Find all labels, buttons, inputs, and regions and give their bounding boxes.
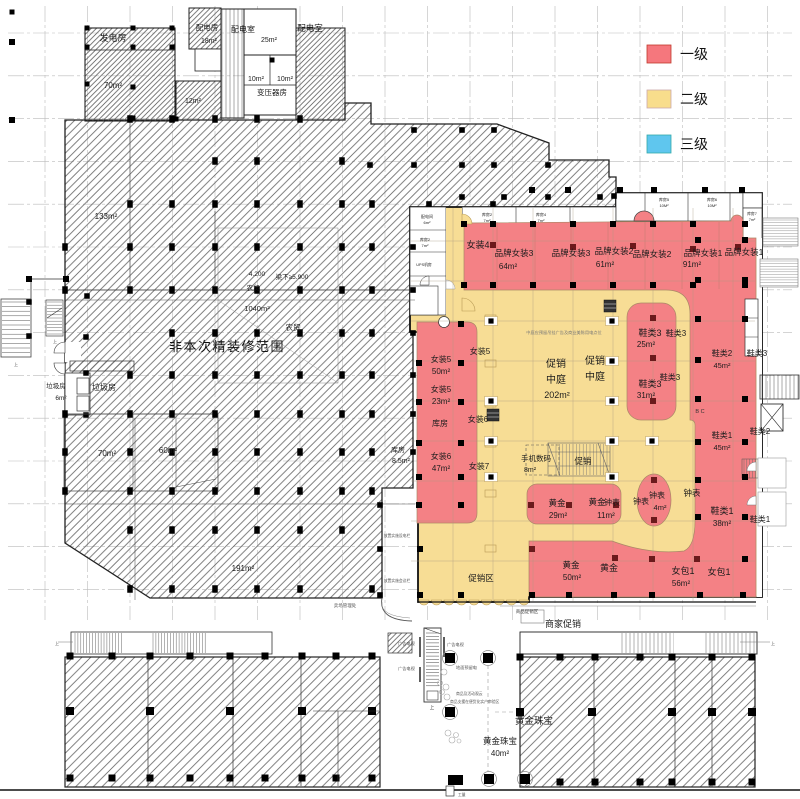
svg-text:一级: 一级 xyxy=(680,46,708,62)
svg-text:垃圾房: 垃圾房 xyxy=(92,382,116,392)
svg-text:60m²: 60m² xyxy=(159,446,178,455)
svg-text:鞋类1: 鞋类1 xyxy=(712,430,733,440)
svg-text:7m²: 7m² xyxy=(538,218,546,223)
svg-text:7m²: 7m² xyxy=(422,243,430,248)
svg-text:梁下≥5.900: 梁下≥5.900 xyxy=(276,272,309,281)
svg-text:钟表: 钟表 xyxy=(683,488,701,498)
svg-text:钟表: 钟表 xyxy=(633,496,649,506)
svg-text:变压器房: 变压器房 xyxy=(257,87,287,97)
svg-text:品牌女装2: 品牌女装2 xyxy=(633,249,672,259)
svg-text:133m²: 133m² xyxy=(95,212,118,221)
svg-text:非本次精装修范围: 非本次精装修范围 xyxy=(169,339,285,354)
svg-text:38m²: 38m² xyxy=(713,519,732,528)
svg-text:鞋类2: 鞋类2 xyxy=(712,348,733,358)
svg-text:广告电视: 广告电视 xyxy=(447,641,465,648)
svg-text:鞋类1: 鞋类1 xyxy=(710,505,733,516)
svg-text:垃圾房: 垃圾房 xyxy=(46,381,66,390)
svg-text:上: 上 xyxy=(430,704,435,710)
svg-text:女装7: 女装7 xyxy=(469,461,490,471)
svg-text:45m²: 45m² xyxy=(713,361,731,370)
svg-text:70m²: 70m² xyxy=(104,81,123,90)
svg-text:UPS机房: UPS机房 xyxy=(416,262,432,267)
svg-text:上: 上 xyxy=(55,640,59,646)
svg-text:库房6: 库房6 xyxy=(707,196,718,202)
svg-text:促销: 促销 xyxy=(574,456,592,466)
svg-text:促销区: 促销区 xyxy=(468,573,494,583)
svg-text:鞋类1: 鞋类1 xyxy=(750,514,771,524)
svg-text:黄金: 黄金 xyxy=(562,560,580,570)
svg-text:56m²: 56m² xyxy=(672,579,691,588)
svg-text:鞋类3: 鞋类3 xyxy=(666,328,687,338)
svg-text:50m²: 50m² xyxy=(563,573,582,582)
svg-text:女装4: 女装4 xyxy=(466,239,489,250)
svg-text:黄金珠宝: 黄金珠宝 xyxy=(515,715,553,727)
svg-text:18m²: 18m² xyxy=(201,38,218,45)
svg-text:商品及活动观云: 商品及活动观云 xyxy=(456,691,483,696)
svg-text:配电间: 配电间 xyxy=(421,213,433,219)
svg-text:库房5: 库房5 xyxy=(659,196,670,202)
svg-text:50m²: 50m² xyxy=(432,367,451,376)
svg-text:库房: 库房 xyxy=(391,445,405,454)
svg-text:品牌女装1: 品牌女装1 xyxy=(725,247,764,257)
svg-text:配电房: 配电房 xyxy=(196,22,219,32)
svg-text:31m²: 31m² xyxy=(637,391,656,400)
svg-text:1040m²: 1040m² xyxy=(244,304,270,313)
svg-text:配电室: 配电室 xyxy=(297,23,323,33)
svg-text:库房: 库房 xyxy=(432,418,448,428)
svg-text:鞋类3: 鞋类3 xyxy=(747,348,768,358)
svg-text:三级: 三级 xyxy=(680,136,708,152)
svg-text:促销: 促销 xyxy=(585,354,605,367)
svg-text:地面预留电: 地面预留电 xyxy=(456,664,478,671)
svg-text:女装6: 女装6 xyxy=(431,451,452,461)
svg-text:商品支援在便货化实户审验区: 商品支援在便货化实户审验区 xyxy=(450,699,500,704)
svg-text:中庭: 中庭 xyxy=(585,370,605,383)
svg-text:8m²: 8m² xyxy=(524,467,537,474)
svg-text:品牌女装2: 品牌女装2 xyxy=(595,246,634,256)
svg-text:卖场管理处: 卖场管理处 xyxy=(334,602,357,609)
svg-text:45m²: 45m² xyxy=(713,443,731,452)
svg-text:上: 上 xyxy=(771,640,775,646)
svg-text:12m²: 12m² xyxy=(185,98,202,105)
svg-text:鞋类3: 鞋类3 xyxy=(660,372,681,382)
svg-text:库房2: 库房2 xyxy=(482,211,493,217)
svg-text:70m²: 70m² xyxy=(98,449,117,458)
svg-text:商品促销区: 商品促销区 xyxy=(516,608,539,615)
svg-text:10M²: 10M² xyxy=(707,203,717,208)
svg-text:29m²: 29m² xyxy=(549,511,568,520)
svg-text:中庭: 中庭 xyxy=(546,373,566,386)
svg-text:女包1: 女包1 xyxy=(671,565,694,576)
svg-text:放置实施会议栏: 放置实施会议栏 xyxy=(384,578,411,583)
svg-text:鞋类3: 鞋类3 xyxy=(638,327,661,338)
svg-text:B C: B C xyxy=(695,409,704,415)
svg-text:库房7: 库房7 xyxy=(747,211,757,216)
svg-text:91m²: 91m² xyxy=(683,260,702,269)
svg-text:商家促销: 商家促销 xyxy=(545,618,581,629)
svg-text:鞋类3: 鞋类3 xyxy=(638,378,661,389)
svg-text:农贸: 农贸 xyxy=(286,322,301,332)
svg-text:40m²: 40m² xyxy=(491,749,510,758)
svg-text:鞋类2: 鞋类2 xyxy=(750,426,771,436)
svg-text:202m²: 202m² xyxy=(544,390,570,400)
svg-text:放置实施设电栏: 放置实施设电栏 xyxy=(384,533,411,538)
svg-text:女装6: 女装6 xyxy=(468,414,489,424)
svg-text:61m²: 61m² xyxy=(596,260,615,269)
svg-text:女装5: 女装5 xyxy=(431,354,452,364)
svg-text:10M²: 10M² xyxy=(659,203,669,208)
svg-text:25m²: 25m² xyxy=(261,37,278,44)
svg-text:促销: 促销 xyxy=(546,357,566,370)
svg-text:黄金: 黄金 xyxy=(548,498,566,508)
svg-text:25m²: 25m² xyxy=(637,340,656,349)
svg-text:64m²: 64m² xyxy=(499,262,518,271)
svg-text:47m²: 47m² xyxy=(432,464,451,473)
svg-text:工量: 工量 xyxy=(458,792,466,797)
svg-text:钟表: 钟表 xyxy=(604,497,620,507)
svg-text:品牌女装3: 品牌女装3 xyxy=(495,248,534,258)
svg-text:女装5: 女装5 xyxy=(431,384,452,394)
svg-text:4m²: 4m² xyxy=(654,503,667,512)
svg-text:黄金珠宝: 黄金珠宝 xyxy=(483,736,517,746)
svg-text:191m²: 191m² xyxy=(232,564,255,573)
svg-text:广告电视: 广告电视 xyxy=(398,665,416,672)
svg-text:23m²: 23m² xyxy=(432,397,451,406)
svg-text:钟表: 钟表 xyxy=(649,490,665,500)
svg-text:6m²: 6m² xyxy=(424,220,432,225)
svg-text:11m²: 11m² xyxy=(597,511,615,520)
svg-text:二级: 二级 xyxy=(680,91,708,107)
svg-text:发电房: 发电房 xyxy=(99,32,126,43)
svg-text:品牌女装1: 品牌女装1 xyxy=(684,248,723,258)
svg-text:广告电视: 广告电视 xyxy=(398,640,416,647)
svg-text:配电室: 配电室 xyxy=(231,24,255,34)
svg-text:中庭应预留吊挂广告及商业美陈用电点位: 中庭应预留吊挂广告及商业美陈用电点位 xyxy=(526,329,601,336)
svg-text:黄金: 黄金 xyxy=(600,562,618,573)
svg-text:品牌女装3: 品牌女装3 xyxy=(552,248,591,258)
svg-text:7m²: 7m² xyxy=(484,218,492,223)
svg-text:4.200: 4.200 xyxy=(249,271,266,278)
svg-text:女包1: 女包1 xyxy=(707,566,730,577)
svg-text:农贸: 农贸 xyxy=(247,283,261,292)
svg-text:上: 上 xyxy=(53,338,57,344)
svg-text:10m²: 10m² xyxy=(248,76,265,83)
svg-text:10m²: 10m² xyxy=(277,76,294,83)
svg-text:8.5m²: 8.5m² xyxy=(392,458,411,465)
svg-text:库房2: 库房2 xyxy=(420,236,431,242)
svg-text:6m²: 6m² xyxy=(55,395,67,402)
svg-text:7m²: 7m² xyxy=(749,218,756,222)
svg-text:手机数码: 手机数码 xyxy=(521,453,551,463)
svg-text:女装5: 女装5 xyxy=(470,346,491,356)
svg-text:上: 上 xyxy=(14,361,18,367)
svg-text:库房4: 库房4 xyxy=(536,211,547,217)
